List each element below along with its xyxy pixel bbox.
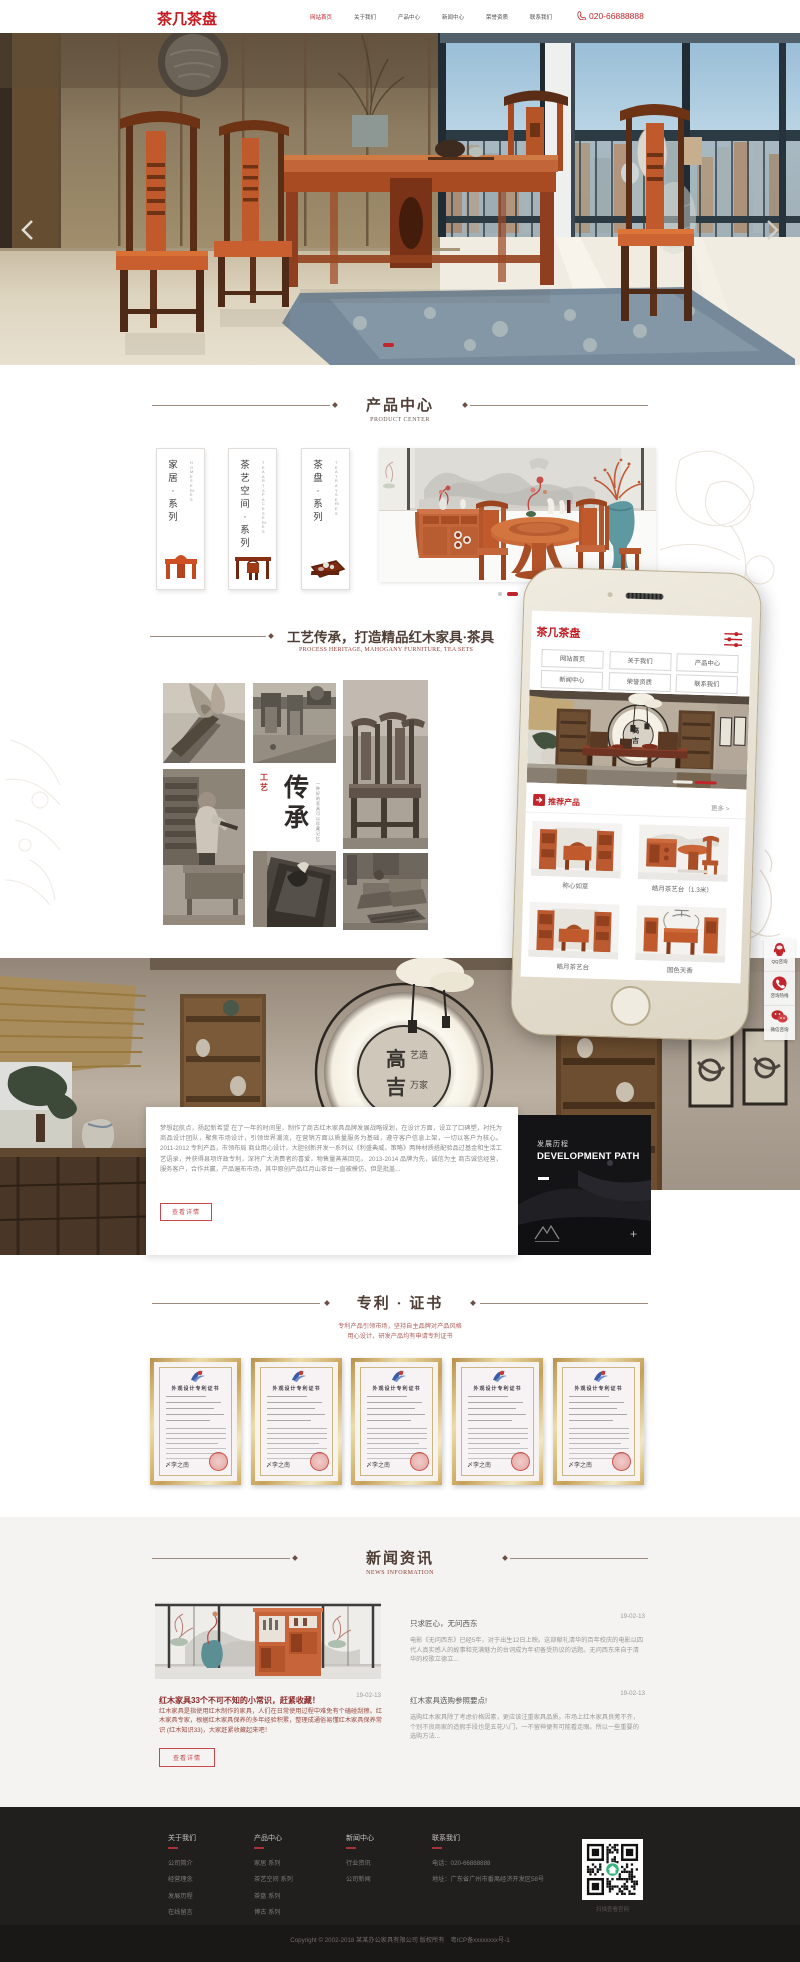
svg-text:吉: 吉 xyxy=(632,736,639,745)
svg-text:高: 高 xyxy=(386,1047,406,1071)
svg-text:吉: 吉 xyxy=(386,1076,406,1099)
svg-text:艺造: 艺造 xyxy=(410,1049,428,1060)
svg-text:万家: 万家 xyxy=(410,1079,428,1090)
